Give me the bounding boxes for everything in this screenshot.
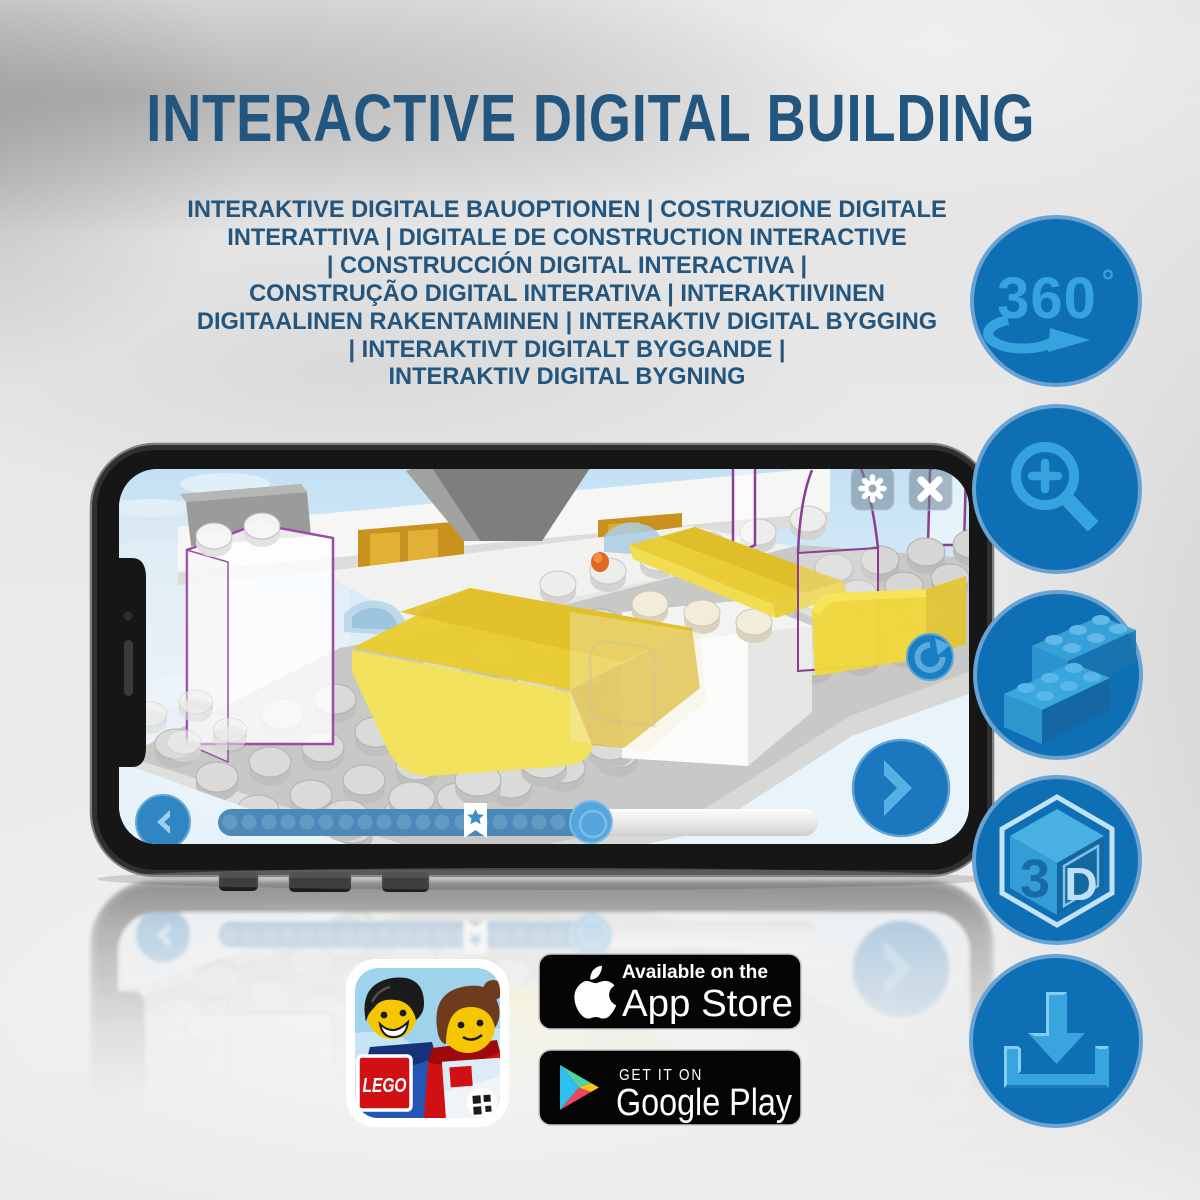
svg-text:Available on the: Available on the [622, 962, 768, 983]
svg-text:3: 3 [1020, 849, 1050, 909]
svg-text:Google Play: Google Play [616, 1082, 792, 1124]
svg-text:360: 360 [997, 266, 1097, 331]
svg-text:D: D [1064, 858, 1097, 910]
svg-text:App Store: App Store [622, 983, 793, 1025]
svg-text:LEGO: LEGO [363, 1075, 407, 1097]
svg-text:°: ° [1102, 263, 1115, 299]
